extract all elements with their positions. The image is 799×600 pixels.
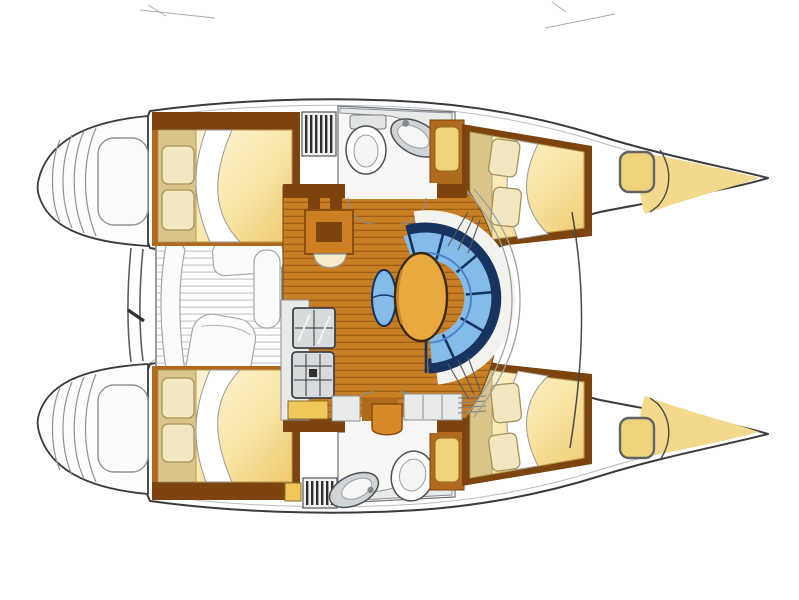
doorway-opening	[345, 183, 437, 199]
galley-cabinet-front	[285, 483, 301, 501]
galley-cabinet	[332, 396, 360, 421]
pillow	[162, 146, 194, 184]
crossbeam-line	[140, 249, 143, 361]
port-swim-platform	[98, 138, 148, 225]
aft-seat	[372, 404, 402, 435]
catamaran-floor-plan-canvas	[0, 0, 799, 600]
port-stern-platform	[38, 116, 149, 246]
rigging-marks	[140, 2, 615, 28]
catamaran-floor-plan	[0, 0, 799, 600]
port-forward-cabin	[462, 124, 669, 250]
starboard-swim-platform	[98, 385, 148, 472]
crossbeam-fitting	[128, 310, 144, 321]
pillow	[162, 190, 194, 230]
wall-post	[308, 196, 320, 210]
rigging-line	[140, 10, 215, 18]
rigging-line	[148, 5, 166, 16]
starboard-stern-platform	[38, 364, 149, 494]
saloon-fwd-wall	[437, 184, 467, 198]
burner	[309, 369, 317, 377]
wall-post	[330, 196, 342, 210]
pillow	[488, 138, 521, 178]
pillow	[490, 383, 522, 424]
pillow	[488, 432, 521, 472]
bow-deck-hatch	[620, 418, 654, 458]
port-aft-cabin	[152, 112, 300, 246]
pillow	[162, 424, 194, 462]
starboard-aft-cabin	[152, 366, 300, 500]
cabin-bulkhead	[152, 482, 300, 500]
chart-table-drawer	[316, 222, 342, 242]
toilet	[346, 115, 386, 174]
port-head	[338, 106, 464, 188]
rigging-line	[552, 2, 566, 12]
aft-crossbeam	[128, 248, 144, 362]
dinette-table	[395, 253, 447, 341]
fridge-unit	[404, 394, 462, 420]
cabinet-door	[435, 438, 459, 482]
cabin-bulkhead	[152, 112, 300, 130]
bow-deck-hatch	[620, 152, 654, 192]
starboard-forward-cabin	[462, 360, 669, 486]
crossbeam-line	[128, 248, 131, 362]
pillow	[490, 187, 522, 228]
saloon-fwd-wall	[283, 184, 345, 198]
pillow	[162, 378, 194, 418]
toilet-seat	[354, 135, 378, 167]
port-companionway-steps	[302, 112, 336, 156]
dinette-stool	[372, 270, 396, 326]
rigging-line	[545, 14, 615, 28]
galley-sink	[293, 308, 335, 348]
cockpit-seat-cushion	[254, 250, 280, 328]
galley-stove	[292, 352, 334, 398]
cabinet-door	[435, 127, 459, 171]
galley-cabinet-front	[288, 401, 328, 419]
